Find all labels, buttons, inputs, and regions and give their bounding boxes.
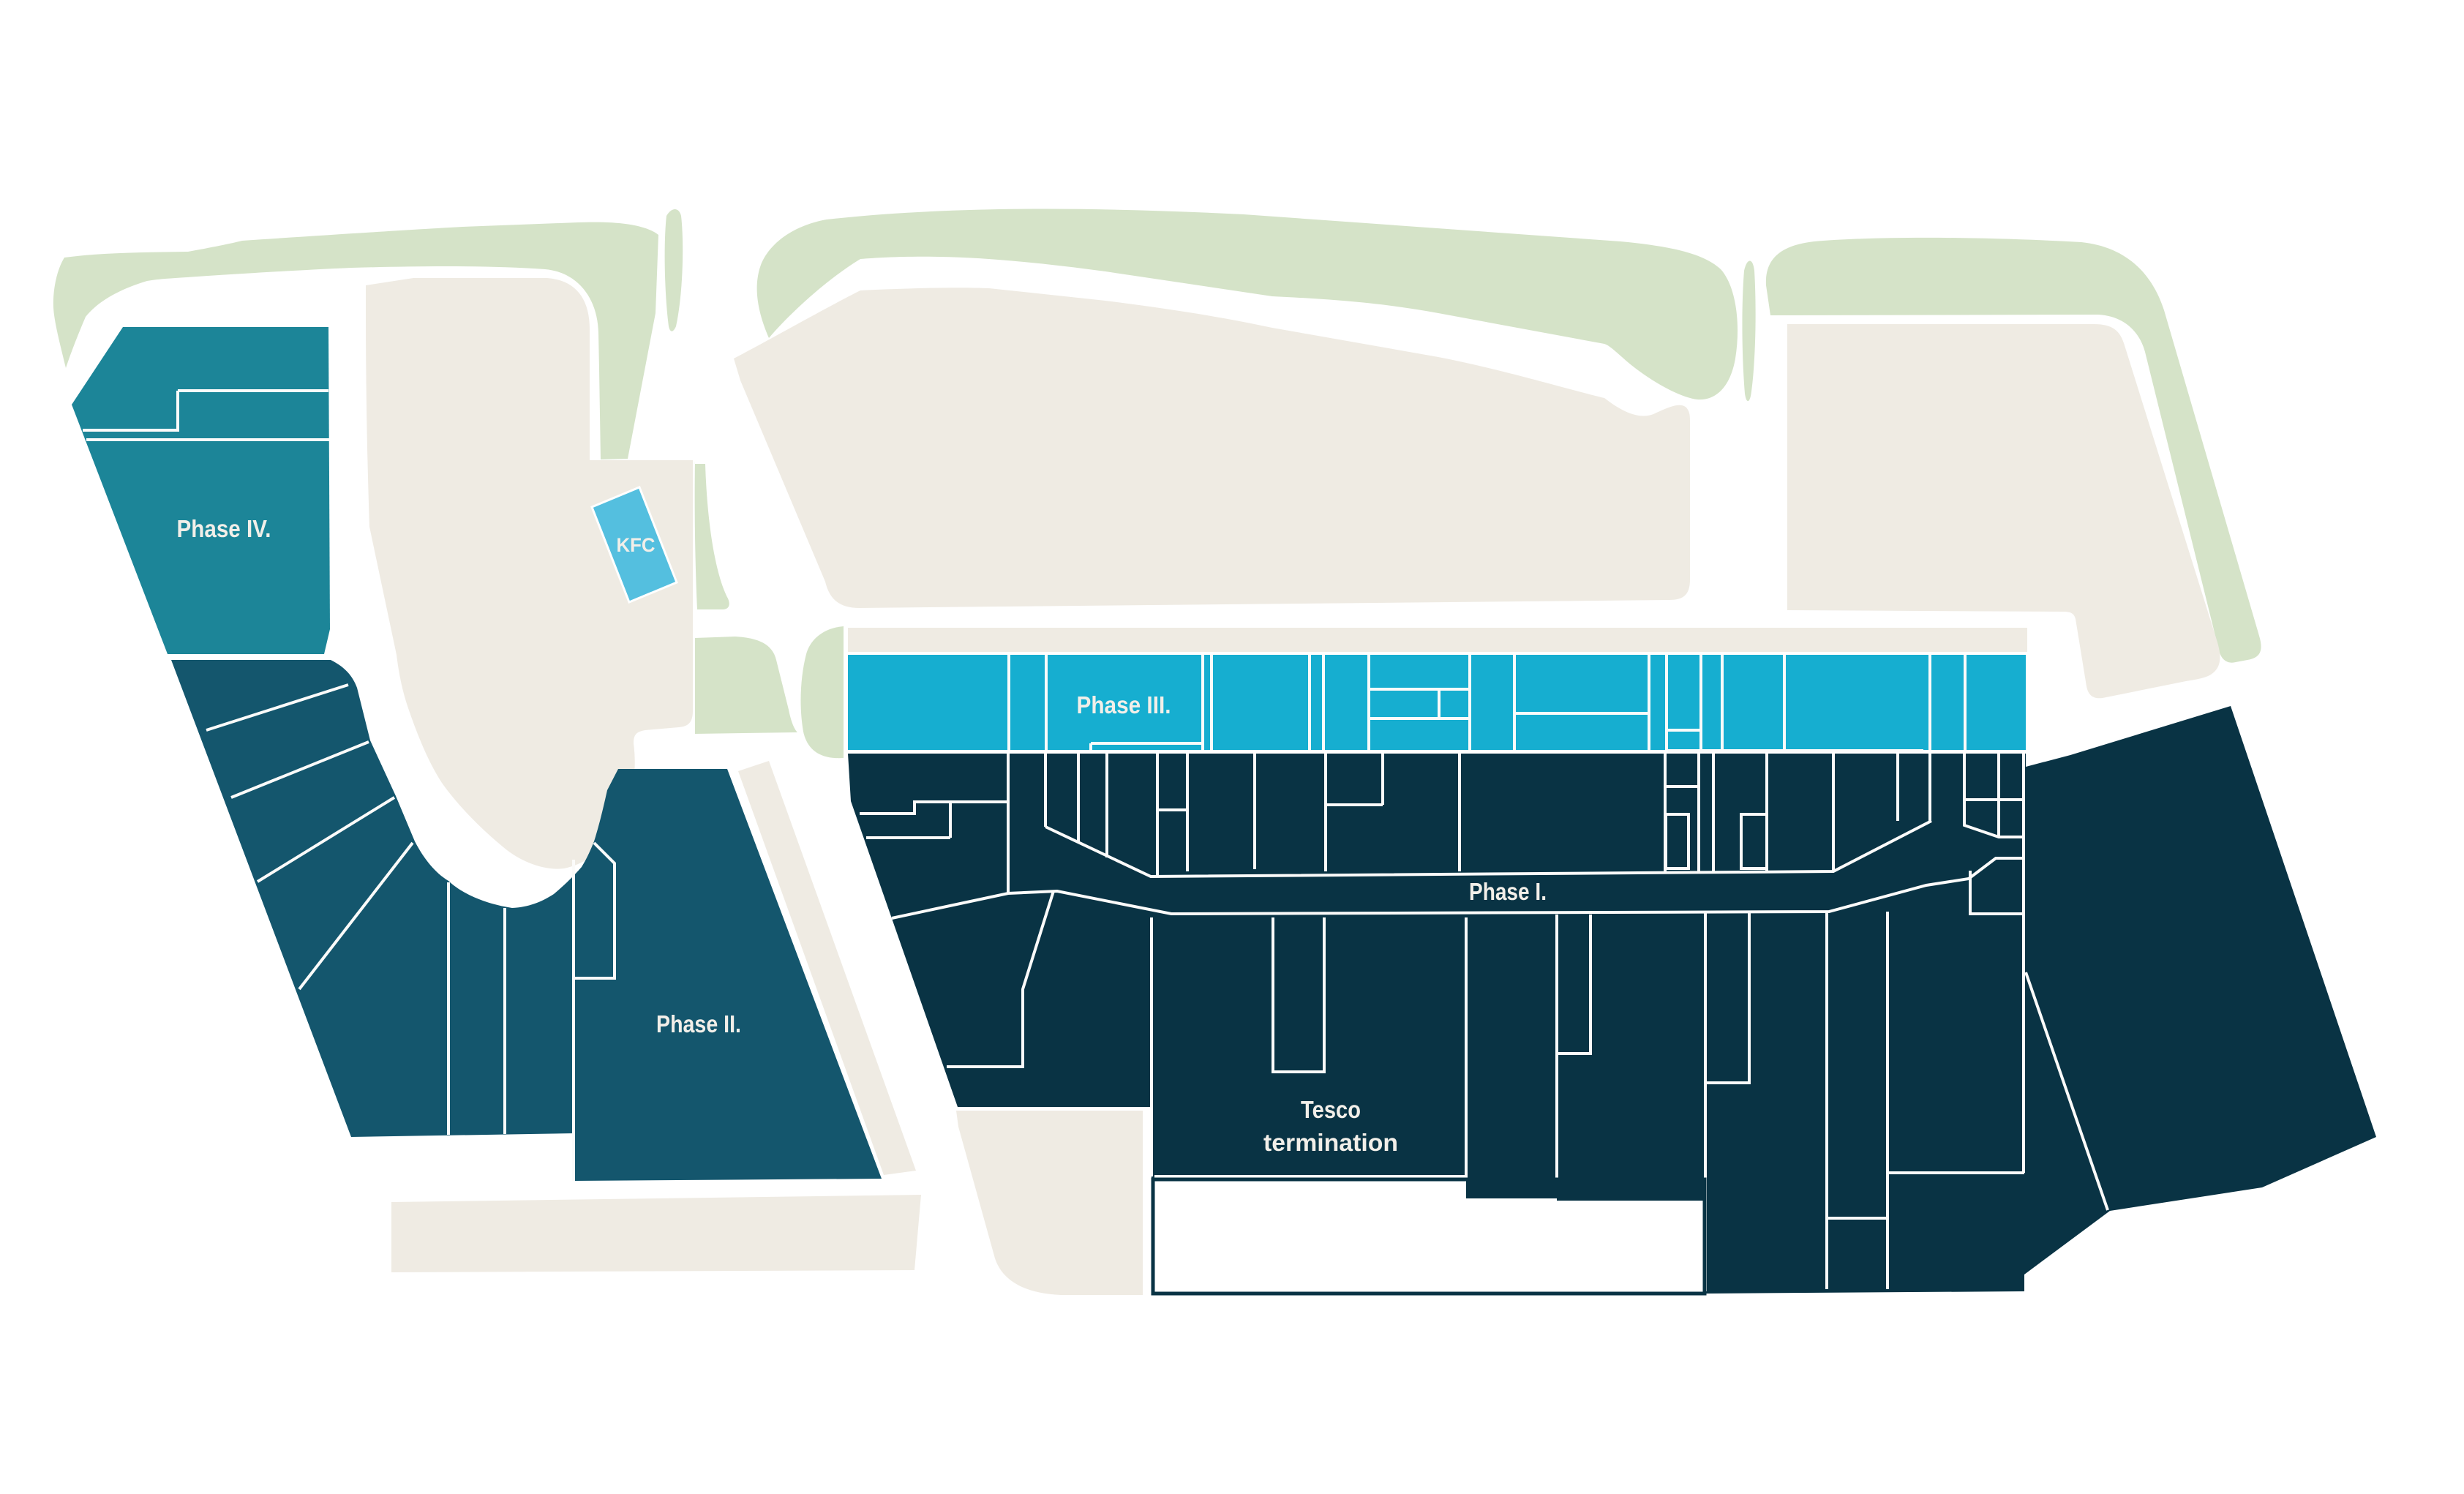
- svg-text:KFC: KFC: [617, 534, 656, 556]
- svg-text:Phase III.: Phase III.: [1077, 691, 1171, 718]
- svg-text:Phase II.: Phase II.: [656, 1010, 741, 1037]
- svg-text:Phase IV.: Phase IV.: [177, 515, 271, 542]
- svg-text:termination: termination: [1263, 1129, 1398, 1156]
- svg-text:Phase I.: Phase I.: [1469, 878, 1547, 905]
- svg-text:Tesco: Tesco: [1301, 1096, 1361, 1123]
